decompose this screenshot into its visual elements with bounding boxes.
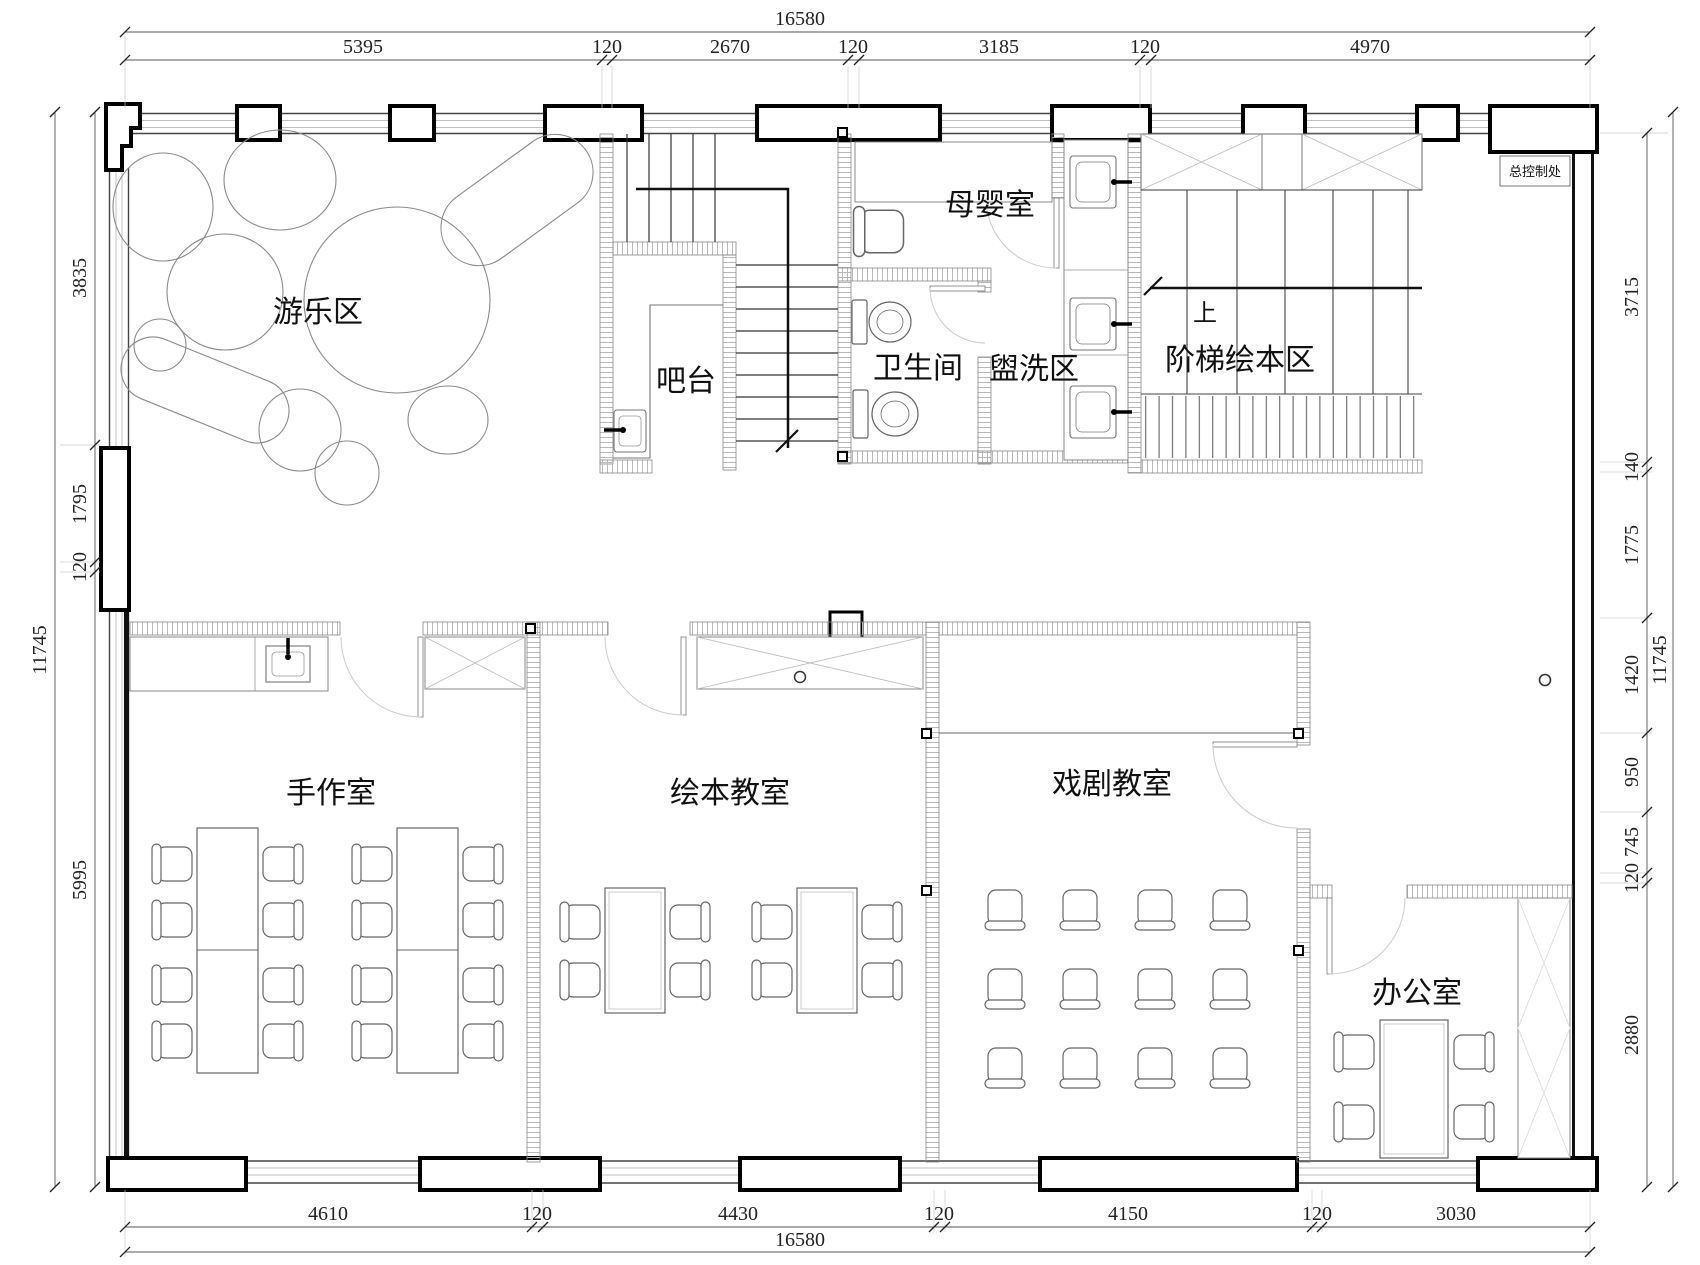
handcraft-door-leaf <box>418 637 423 717</box>
room-label-toilet: 卫生间 <box>873 351 963 386</box>
dim-left-seg-1: 1795 <box>69 484 91 524</box>
dim-bottom-seg-5: 120 <box>1302 1203 1332 1225</box>
master-control-label: 总控制处 <box>1509 165 1561 180</box>
dim-right-total: 11745 <box>1649 635 1671 684</box>
dim-bottom-seg-1: 120 <box>522 1203 552 1225</box>
cabinet-knob-icon <box>795 672 806 683</box>
left-wall-pier <box>101 448 129 610</box>
floor-plan-drawing: 16580 5395 120 2670 120 3185 120 4970 46… <box>0 0 1700 1265</box>
toilet-tank-2 <box>853 390 868 438</box>
up-mark-label: 上 <box>1193 299 1217 327</box>
dim-left-seg-3: 5995 <box>69 860 91 900</box>
dim-right-seg-1: 140 <box>1621 452 1643 482</box>
room-label-office: 办公室 <box>1372 976 1462 1011</box>
dim-right-seg-0: 3715 <box>1621 277 1643 317</box>
dim-top-seg-6: 4970 <box>1350 36 1390 58</box>
dim-bottom-seg-3: 120 <box>924 1203 954 1225</box>
stepped-cabinet <box>1141 134 1422 190</box>
corner-pier-top-left <box>106 104 140 170</box>
dim-bottom-seg-6: 3030 <box>1436 1203 1476 1225</box>
dim-bottom-total: 16580 <box>775 1229 825 1251</box>
room-label-wash-area: 盥洗区 <box>989 352 1079 387</box>
dim-top-seg-0: 5395 <box>343 36 383 58</box>
corner-pier-bottom-right <box>1478 1158 1597 1190</box>
toilet-door-leaf <box>930 286 985 291</box>
room-label-drama-classroom: 戏剧教室 <box>1052 767 1172 802</box>
wash-area-fixtures <box>1064 140 1132 460</box>
dim-right-seg-5: 745 <box>1621 827 1643 857</box>
wall-knob-icon <box>1540 675 1551 686</box>
dim-top-seg-3: 120 <box>838 36 868 58</box>
nursing-armchair <box>854 207 904 257</box>
dim-top-seg-2: 2670 <box>710 36 750 58</box>
dim-top-seg-4: 3185 <box>979 36 1019 58</box>
drama-door-leaf <box>1213 742 1297 747</box>
dim-top-total: 16580 <box>775 8 825 30</box>
room-label-play-area: 游乐区 <box>273 295 363 330</box>
room-label-handcraft-room: 手作室 <box>286 776 376 811</box>
nursing-door-leaf <box>1054 198 1059 268</box>
room-label-stepped-reading-area: 阶梯绘本区 <box>1165 343 1315 378</box>
dim-left-total: 11745 <box>29 625 51 674</box>
toilet-tank-1 <box>852 300 867 344</box>
dim-bottom-seg-4: 4150 <box>1108 1203 1148 1225</box>
dim-right-seg-4: 950 <box>1621 757 1643 787</box>
room-label-nursing-room: 母婴室 <box>945 188 1035 223</box>
dim-right-seg-2: 1775 <box>1621 525 1643 565</box>
floor-plan-canvas: 16580 5395 120 2670 120 3185 120 4970 46… <box>0 0 1700 1265</box>
room-labels: 游乐区 吧台 母婴室 卫生间 盥洗区 阶梯绘本区 上 总控制处 手作室 绘本教室… <box>273 165 1561 1011</box>
room-label-picture-book-classroom: 绘本教室 <box>670 776 790 811</box>
up-arrowhead-icon <box>1144 277 1162 295</box>
dim-left-seg-0: 3835 <box>69 258 91 298</box>
stair-handrail <box>636 189 788 448</box>
office-door-leaf <box>1327 898 1332 974</box>
handcraft-room-fixtures <box>130 637 525 691</box>
room-label-bar: 吧台 <box>656 364 716 399</box>
office-wardrobe <box>1518 898 1570 1158</box>
dim-left-seg-2: 120 <box>69 552 91 582</box>
dim-bottom-seg-2: 4430 <box>718 1203 758 1225</box>
dim-bottom-seg-0: 4610 <box>308 1203 348 1225</box>
classroom-cabinet <box>697 637 923 689</box>
dim-top-seg-1: 120 <box>592 36 622 58</box>
classroom-door-leaf <box>681 637 686 715</box>
stepped-risers <box>1141 396 1422 458</box>
stepped-reading-area <box>1141 134 1422 458</box>
dim-right-seg-6: 120 <box>1621 863 1643 893</box>
dim-top-seg-5: 120 <box>1130 36 1160 58</box>
dim-right-seg-7: 2880 <box>1621 1015 1643 1055</box>
corner-pier-top-right <box>1490 106 1597 152</box>
dim-right-seg-3: 1420 <box>1621 655 1643 695</box>
